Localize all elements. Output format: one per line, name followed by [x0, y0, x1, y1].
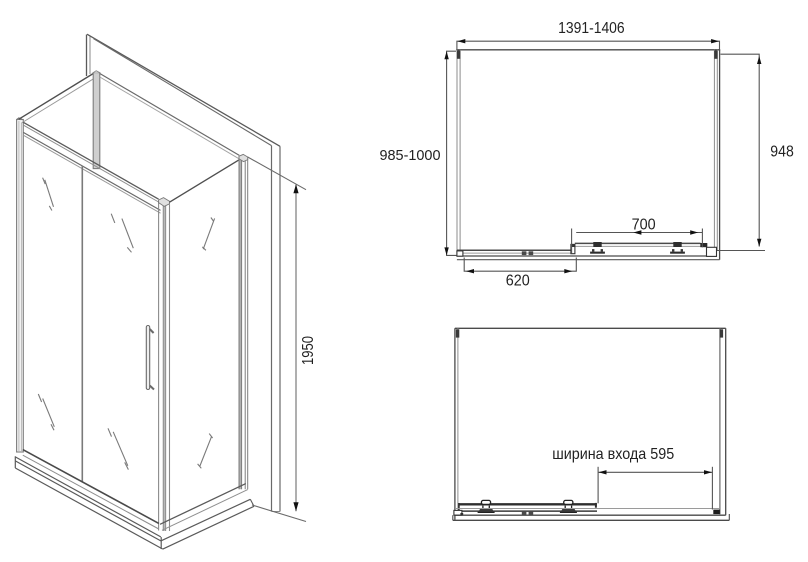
svg-text:985-1000: 985-1000: [380, 147, 441, 164]
svg-text:948: 948: [770, 143, 794, 160]
svg-text:1950: 1950: [300, 336, 317, 365]
svg-text:620: 620: [506, 272, 530, 289]
svg-text:ширина входа 595: ширина входа 595: [552, 446, 674, 463]
svg-text:1391-1406: 1391-1406: [558, 20, 625, 37]
svg-text:700: 700: [632, 216, 656, 233]
